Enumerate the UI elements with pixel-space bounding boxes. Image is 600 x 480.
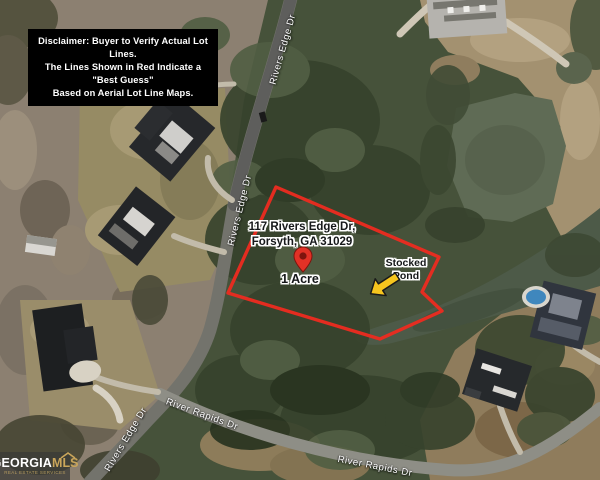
lot-size-label: 1 Acre xyxy=(250,272,350,286)
disclaimer-box: Disclaimer: Buyer to Verify Actual Lot L… xyxy=(28,29,218,106)
lot-address-line1: 117 Rivers Edge Dr, xyxy=(222,220,382,235)
logo-tagline: REAL ESTATE SERVICES xyxy=(4,470,66,475)
disclaimer-line2: The Lines Shown in Red Indicate a "Best … xyxy=(36,61,210,87)
disclaimer-line3: Based on Aerial Lot Line Maps. xyxy=(36,87,210,100)
pond-arrow-icon xyxy=(366,271,406,301)
location-pin-icon xyxy=(293,246,313,273)
aerial-map: Disclaimer: Buyer to Verify Actual Lot L… xyxy=(0,0,600,480)
logo-brand-primary: GEORGIA xyxy=(0,456,52,470)
georgia-mls-logo-text: GEORGIAMLS xyxy=(0,457,78,469)
disclaimer-line1: Disclaimer: Buyer to Verify Actual Lot L… xyxy=(36,35,210,61)
logo-brand-secondary: MLS xyxy=(52,456,78,470)
georgia-mls-logo: GEORGIAMLS REAL ESTATE SERVICES xyxy=(0,452,70,480)
roof-icon xyxy=(60,452,76,458)
